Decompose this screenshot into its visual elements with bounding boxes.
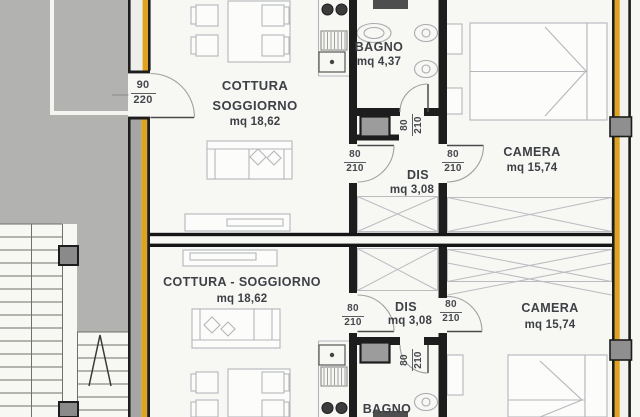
dining-table-top <box>191 1 290 62</box>
insulation-yellow-left-upper <box>143 0 149 71</box>
room-area-bottom-hall: mq 3,08 <box>381 315 439 327</box>
room-area-bottom-living: mq 18,62 <box>158 293 326 305</box>
staircase <box>0 224 128 417</box>
entry-door-jamb-bottom <box>128 117 150 120</box>
washing-machine-top <box>361 117 390 137</box>
room-label-bottom-living: COTTURA - SOGGIORNO <box>158 276 326 289</box>
door-size-bottom-hall-left: 80 210 <box>339 304 367 328</box>
room-label-top-living-line2: SOGGIORNO <box>198 99 312 113</box>
room-label-bottom-hall: DIS <box>385 301 427 314</box>
floor-plan: COTTURA SOGGIORNO mq 18,62 BAGNO mq 4,37… <box>0 0 640 417</box>
door-height: 210 <box>414 351 424 369</box>
room-area-top-hall: mq 3,08 <box>383 184 441 196</box>
door-width: 80 <box>347 304 359 314</box>
door-width: 80 <box>400 354 410 366</box>
toilet-bottom <box>415 394 438 411</box>
room-label-top-bath: BAGNO <box>350 41 408 54</box>
kitchen-counter-top <box>319 0 350 76</box>
kitchen-counter-bottom <box>319 341 350 417</box>
dining-table-bottom <box>191 369 290 417</box>
door-height: 210 <box>414 116 424 134</box>
pillar-right-top <box>610 117 632 137</box>
door-width: 80 <box>349 150 361 160</box>
washing-machine-bottom <box>361 343 390 363</box>
toilet-top <box>415 25 438 42</box>
stair-direction-arrow <box>89 335 111 386</box>
double-bed-bottom <box>447 355 607 417</box>
door-size-bottom-hall-right: 80 210 <box>437 300 465 324</box>
room-label-bottom-bedroom: CAMERA <box>516 302 584 315</box>
sideboard-bottom <box>183 250 277 266</box>
room-label-top-hall: DIS <box>397 169 439 182</box>
room-area-top-bath: mq 4,37 <box>350 56 408 68</box>
bidet-top <box>415 61 438 78</box>
section-band <box>150 233 612 247</box>
plan-drawing <box>0 0 640 417</box>
double-bed-top <box>446 23 607 120</box>
room-area-bottom-bedroom: mq 15,74 <box>516 319 584 331</box>
pillar-right-bottom <box>610 340 632 360</box>
door-height: 210 <box>346 164 364 174</box>
door-height: 210 <box>442 314 460 324</box>
sofa-top <box>207 141 292 179</box>
door-height: 220 <box>133 95 152 106</box>
sideboard-top <box>185 214 290 231</box>
door-width: 80 <box>400 119 410 131</box>
door-size-top-hall-right: 80 210 <box>439 150 467 174</box>
room-label-top-living-line1: COTTURA <box>198 79 312 93</box>
sofa-bottom <box>192 309 280 348</box>
door-width: 80 <box>447 150 459 160</box>
door-size-top-hall-left: 80 210 <box>341 150 369 174</box>
door-size-entry-top: 90 220 <box>128 80 158 106</box>
door-height: 210 <box>444 164 462 174</box>
room-area-top-bedroom: mq 15,74 <box>498 162 566 174</box>
room-label-top-bedroom: CAMERA <box>498 146 566 159</box>
insulation-yellow-left-lower <box>142 120 148 417</box>
stair-newel-post-top <box>59 246 78 265</box>
door-size-bottom-bath: 80 210 <box>400 345 424 375</box>
shower-top <box>373 0 408 9</box>
door-width: 80 <box>445 300 457 310</box>
room-label-bottom-bath: BAGNO <box>358 403 416 416</box>
door-width: 90 <box>137 80 150 91</box>
stair-newel-post-bottom <box>59 402 78 417</box>
entry-door-jamb-top <box>128 71 150 74</box>
door-size-top-bath: 80 210 <box>400 110 424 140</box>
door-height: 210 <box>344 318 362 328</box>
room-area-top-living: mq 18,62 <box>198 116 312 128</box>
